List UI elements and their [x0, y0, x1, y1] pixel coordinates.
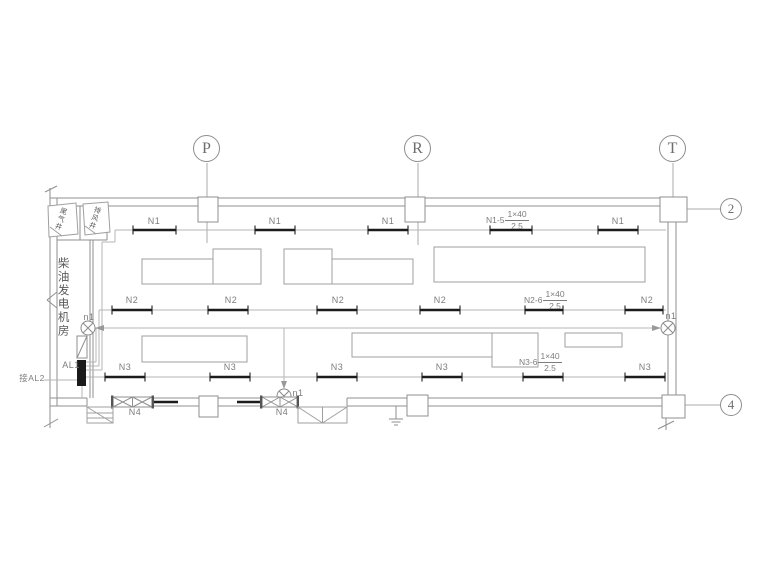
break-marks	[44, 186, 674, 430]
feeder-spec: 1×40 2.5	[543, 290, 566, 310]
equipment-outlines	[142, 247, 645, 367]
room-name: 柴油发电机房	[56, 257, 69, 338]
circuit-label-n1: N1	[269, 217, 282, 226]
circuit-label-n4: N4	[276, 408, 289, 417]
floor-plan-canvas: P R T 2 4 柴油发电机房 尾气井 排风井 AL1 接AL2 n1 n1 …	[0, 0, 780, 585]
feeder-code: N2-6	[524, 296, 542, 305]
feeder-label-n1: N1-5 1×40 2.5	[486, 210, 529, 230]
feeder-label-n3: N3-6 1×40 2.5	[519, 352, 562, 372]
circuit-label-n1: N1	[148, 217, 161, 226]
grid-bubble-4: 4	[720, 394, 742, 416]
panel-label: AL1	[62, 361, 80, 370]
circuit-run-ticks	[105, 226, 665, 382]
circuit-label-n3: N3	[331, 363, 344, 372]
plan-geometry	[0, 0, 780, 585]
grid-bubble-2: 2	[720, 198, 742, 220]
door-left-icon	[87, 407, 113, 423]
feeder-code: N3-6	[519, 358, 537, 367]
circuit-label-n2: N2	[332, 296, 345, 305]
lamp-label: n1	[83, 313, 94, 322]
grid-label: 2	[728, 201, 735, 217]
grid-label: 4	[728, 397, 735, 413]
circuit-label-n2: N2	[641, 296, 654, 305]
grid-bubble-p: P	[193, 135, 220, 162]
circuit-label-n3: N3	[436, 363, 449, 372]
feeder-spec: 1×40 2.5	[538, 352, 561, 372]
grid-bubble-t: T	[659, 135, 686, 162]
grid-bubble-r: R	[404, 135, 431, 162]
circuit-label-n2: N2	[434, 296, 447, 305]
circuit-label-n2: N2	[126, 296, 139, 305]
lamp-label: n1	[292, 389, 303, 398]
grid-label: R	[412, 140, 423, 158]
wall-lines	[50, 188, 687, 428]
door-double-icon	[298, 407, 347, 423]
circuit-thick-runs	[105, 230, 665, 402]
circuit-thin-lines	[44, 230, 666, 398]
feeder-code: N1-5	[486, 216, 504, 225]
circuit-label-n1: N1	[612, 217, 625, 226]
grid-label: P	[202, 140, 211, 158]
lamp-label: n1	[665, 312, 676, 321]
circuit-label-n1: N1	[382, 217, 395, 226]
circuit-label-n4: N4	[129, 408, 142, 417]
incoming-feeder-note: 接AL2	[19, 374, 45, 383]
circuit-label-n3: N3	[224, 363, 237, 372]
feeder-spec: 1×40 2.5	[505, 210, 528, 230]
circuit-label-n3: N3	[639, 363, 652, 372]
circuit-label-n2: N2	[225, 296, 238, 305]
feeder-label-n2: N2-6 1×40 2.5	[524, 290, 567, 310]
circuit-label-n3: N3	[119, 363, 132, 372]
ground-icon	[389, 406, 403, 425]
grid-label: T	[668, 140, 678, 158]
